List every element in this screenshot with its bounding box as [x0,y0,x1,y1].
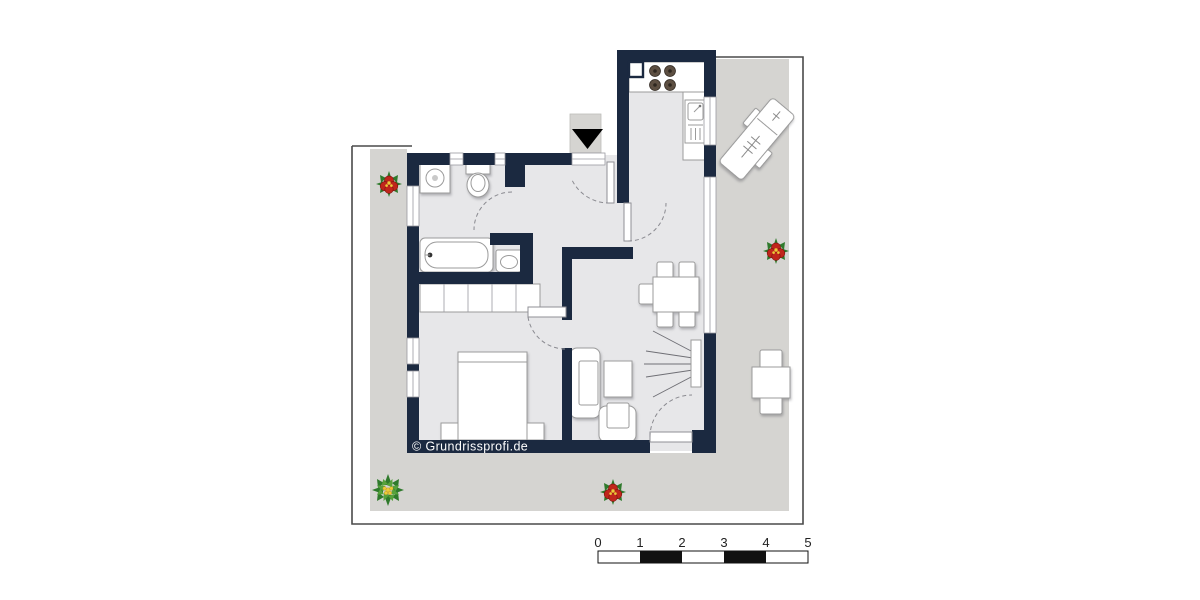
window-icon [407,186,419,226]
floorplan-drawing: © Grundrissprofi.de 0 1 2 3 4 5 [0,0,1200,600]
scale-label: 2 [678,535,685,550]
window-icon [572,153,605,165]
sofa-icon [570,348,600,418]
coffee-table-icon [604,361,632,397]
terrace-chair-icon [760,350,782,368]
nightstand-icon [527,423,544,440]
wardrobe-icon [420,284,540,312]
washbasin-icon [496,250,522,272]
toilet-icon [466,163,490,197]
terrace-table-icon [752,367,790,398]
kitchen-duct-icon [629,62,643,77]
dining-chair-icon [657,311,673,327]
dining-chair-icon [679,311,695,327]
dining-chair-icon [657,262,673,278]
scale-label: 4 [762,535,769,550]
window-icon [407,338,419,364]
kitchen-sink-icon [685,100,706,143]
bathtub-icon [420,238,493,272]
terrace-chair-icon [760,397,782,414]
copyright-text: © Grundrissprofi.de [412,440,528,454]
scale-bar: 0 1 2 3 4 5 [594,535,811,563]
floorplan-page: © Grundrissprofi.de 0 1 2 3 4 5 [0,0,1200,600]
entrance-door-leaf [607,162,614,203]
window-icon [704,97,716,145]
window-icon [450,153,463,165]
scale-label: 5 [804,535,811,550]
window-icon [704,177,716,333]
bedroom-door-leaf [528,307,566,317]
window-icon [407,371,419,397]
kitchen-door-leaf [624,203,631,241]
washing-machine-icon [420,163,450,193]
scale-label: 1 [636,535,643,550]
terrace-door-leaf [650,432,692,442]
window-icon [495,153,505,165]
nightstand-icon [441,423,458,440]
dining-chair-icon [679,262,695,278]
armchair-icon [599,403,636,442]
scale-label: 0 [594,535,601,550]
dining-table-icon [653,277,699,312]
scale-label: 3 [720,535,727,550]
dining-chair-icon [639,284,654,304]
